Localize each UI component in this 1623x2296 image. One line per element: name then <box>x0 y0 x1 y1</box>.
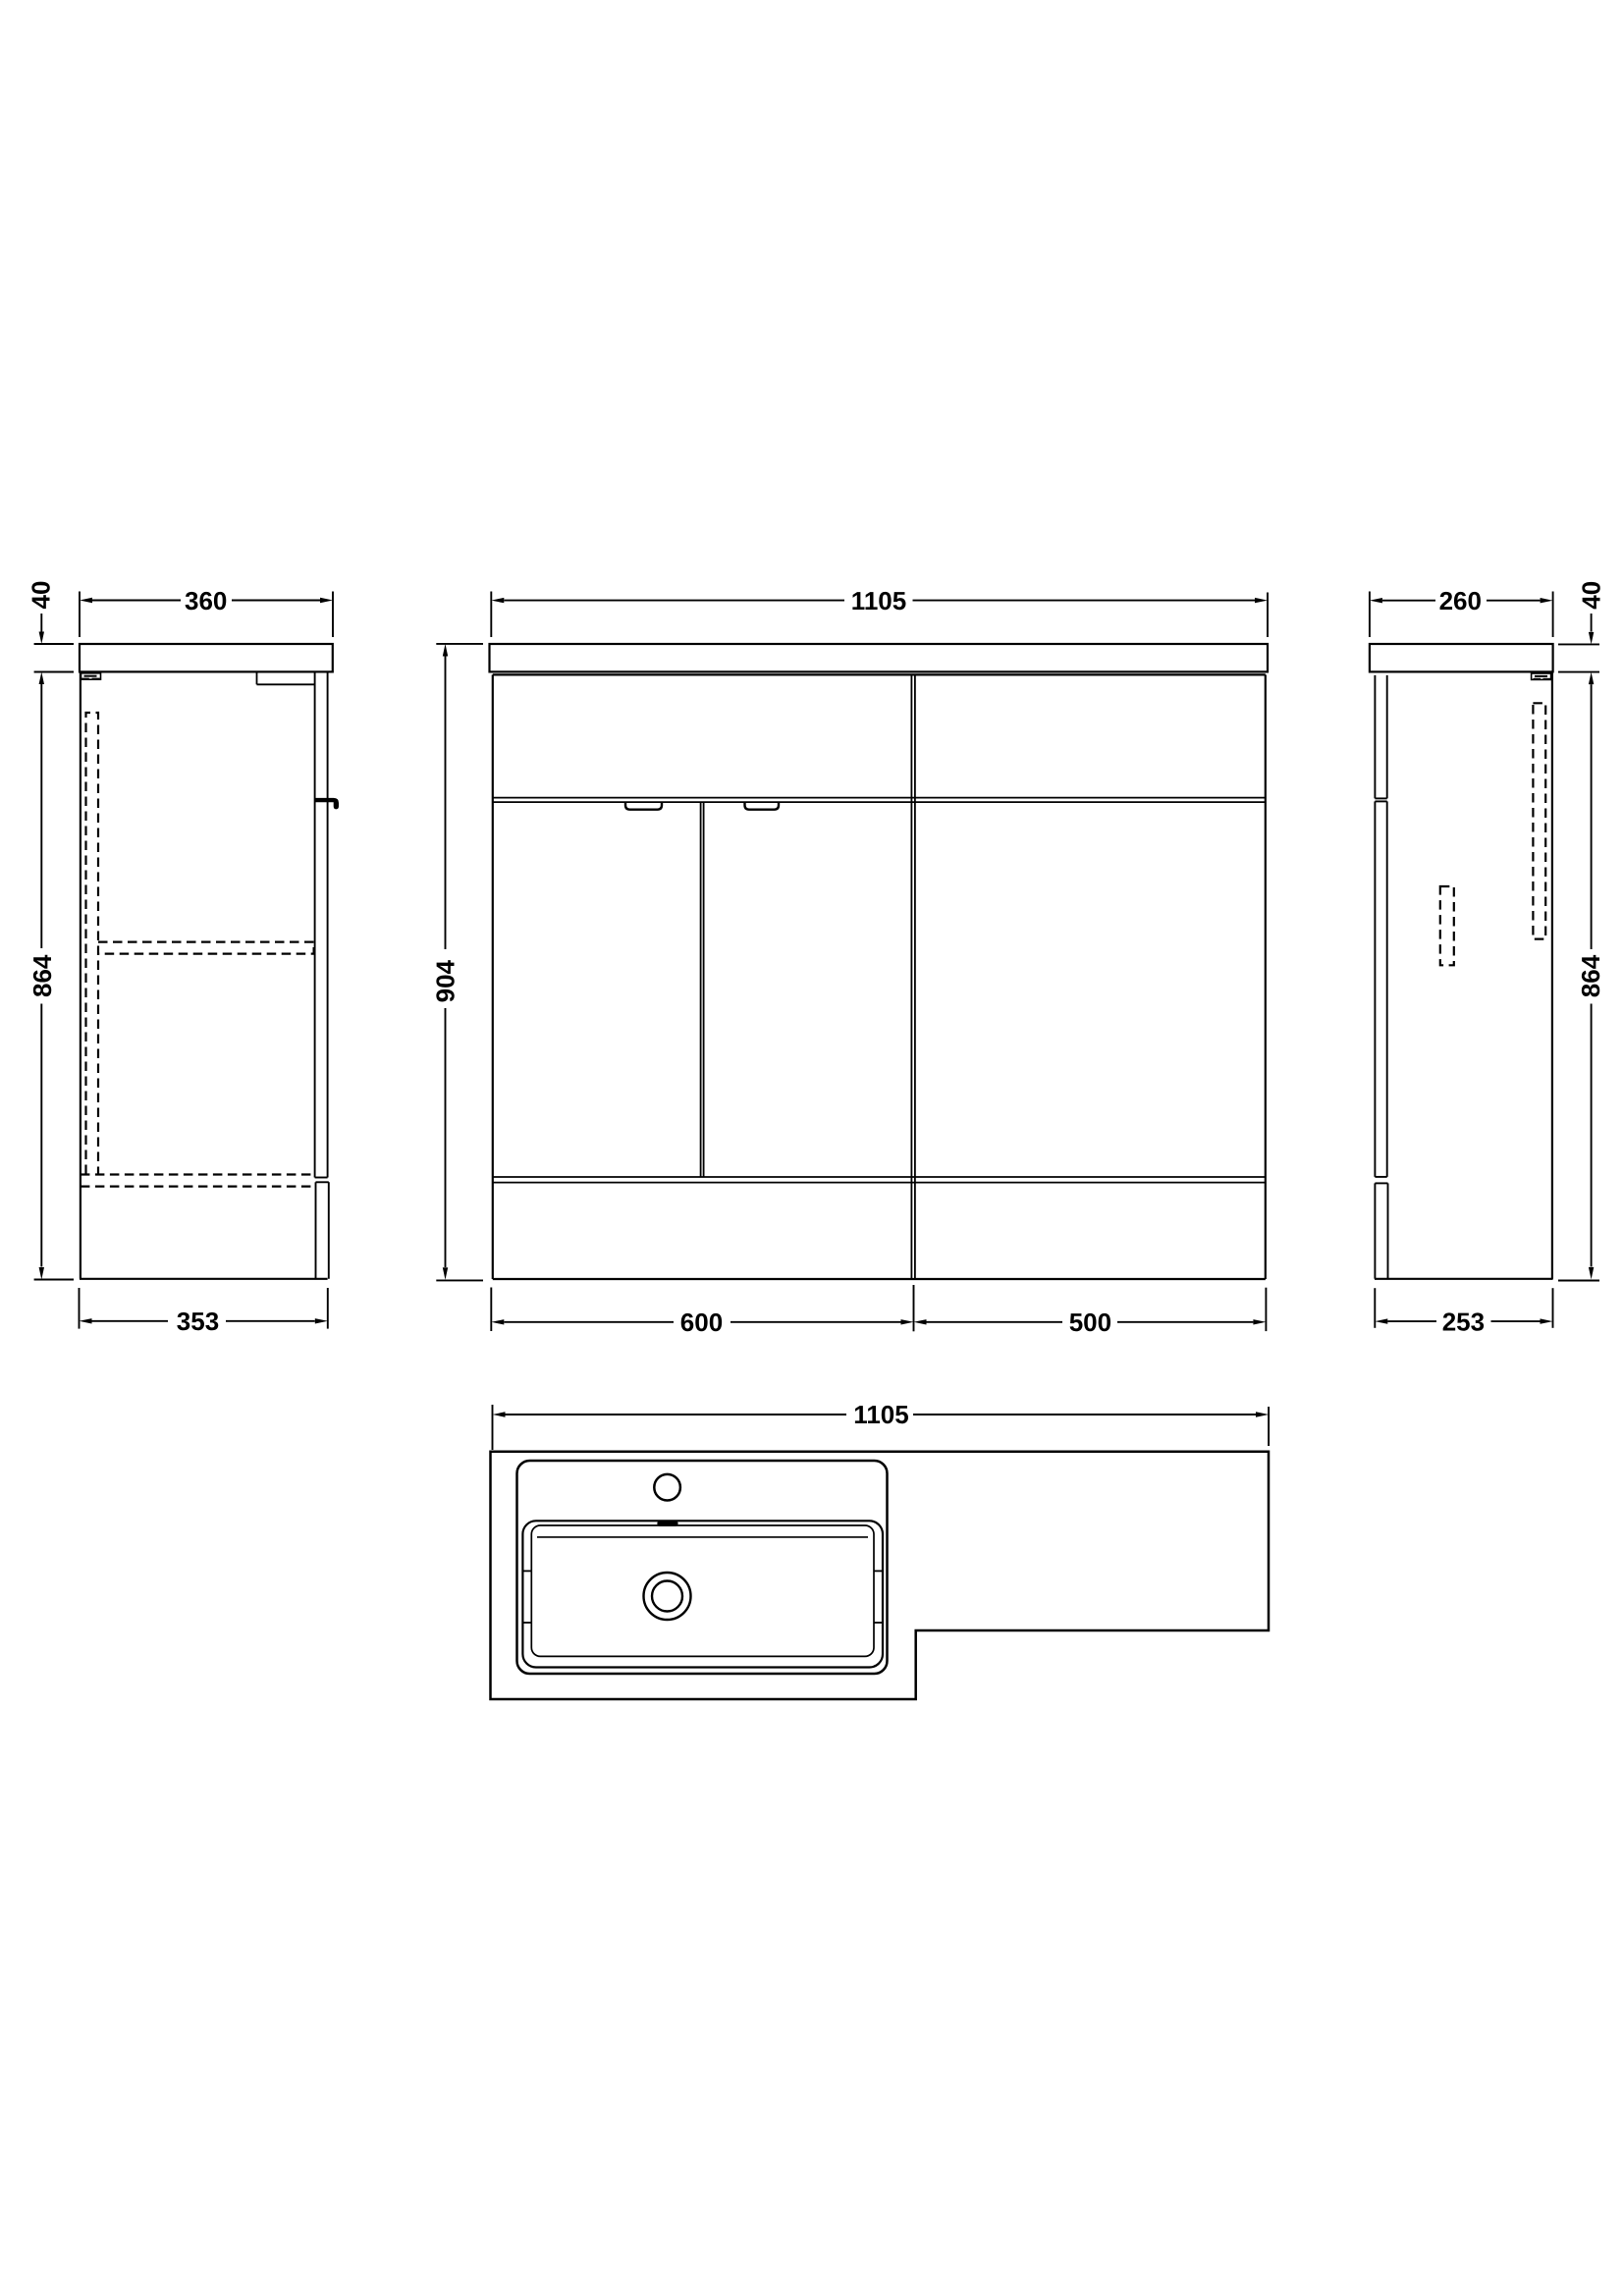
svg-text:600: 600 <box>680 1308 723 1337</box>
svg-text:1105: 1105 <box>851 586 906 615</box>
svg-text:500: 500 <box>1069 1308 1111 1337</box>
svg-text:253: 253 <box>1442 1307 1485 1336</box>
svg-text:40: 40 <box>1576 581 1605 610</box>
svg-text:1105: 1105 <box>853 1400 908 1429</box>
svg-text:260: 260 <box>1439 586 1482 615</box>
svg-text:353: 353 <box>177 1307 219 1336</box>
svg-text:864: 864 <box>1576 954 1605 997</box>
svg-text:360: 360 <box>185 586 227 615</box>
svg-text:904: 904 <box>431 959 460 1002</box>
svg-text:864: 864 <box>27 954 57 997</box>
svg-text:40: 40 <box>27 581 56 610</box>
